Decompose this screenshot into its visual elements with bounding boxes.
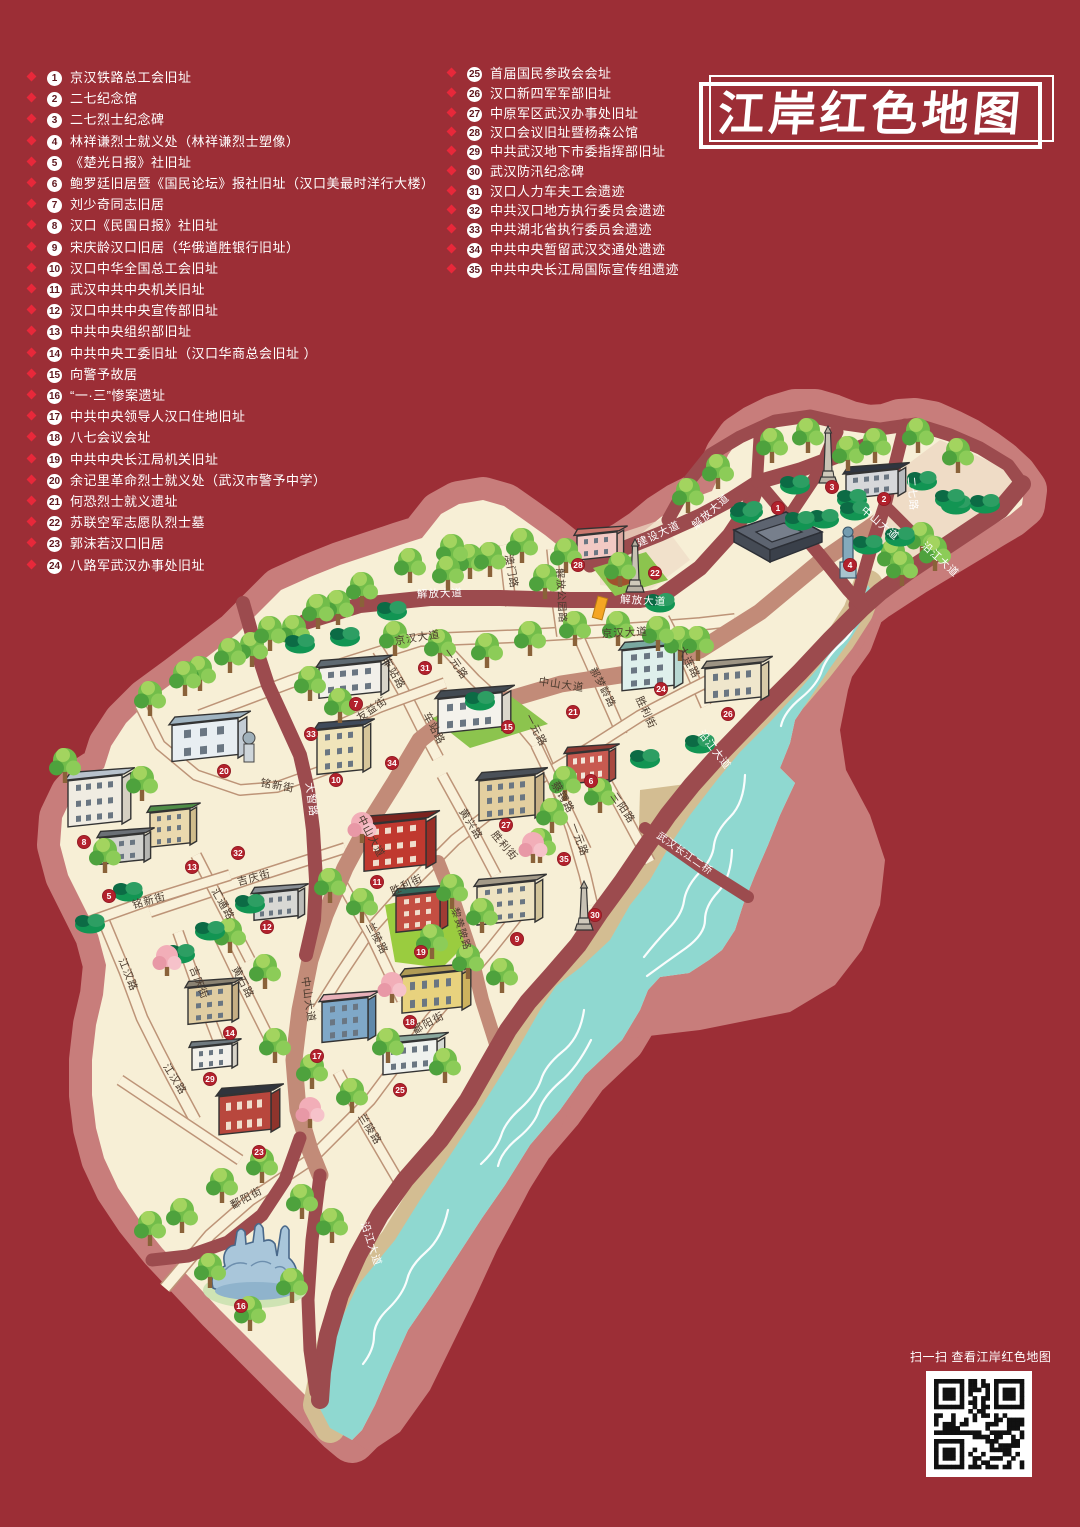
svg-text:30: 30 (590, 910, 600, 920)
svg-text:24: 24 (656, 684, 666, 694)
svg-text:21: 21 (568, 707, 578, 717)
svg-text:17: 17 (312, 1051, 322, 1061)
svg-text:4: 4 (848, 560, 853, 570)
svg-text:27: 27 (501, 820, 511, 830)
svg-text:2: 2 (882, 494, 887, 504)
svg-text:1: 1 (776, 503, 781, 513)
svg-text:22: 22 (650, 568, 660, 578)
svg-text:12: 12 (262, 922, 272, 932)
svg-text:8: 8 (82, 837, 87, 847)
svg-text:29: 29 (205, 1074, 215, 1084)
svg-text:26: 26 (723, 709, 733, 719)
svg-text:14: 14 (225, 1028, 235, 1038)
svg-text:9: 9 (515, 934, 520, 944)
svg-text:34: 34 (387, 758, 397, 768)
svg-text:3: 3 (830, 482, 835, 492)
svg-text:京汉大道: 京汉大道 (602, 625, 649, 640)
svg-text:6: 6 (589, 776, 594, 786)
svg-text:5: 5 (107, 891, 112, 901)
svg-text:11: 11 (373, 877, 382, 887)
svg-text:7: 7 (354, 699, 359, 709)
svg-text:16: 16 (236, 1301, 246, 1311)
svg-text:10: 10 (331, 775, 341, 785)
svg-text:25: 25 (395, 1085, 405, 1095)
svg-text:31: 31 (420, 663, 430, 673)
svg-text:解放大道: 解放大道 (620, 593, 667, 608)
svg-text:28: 28 (573, 560, 583, 570)
svg-text:32: 32 (233, 848, 243, 858)
svg-text:13: 13 (187, 862, 197, 872)
svg-text:解放大道: 解放大道 (417, 586, 463, 601)
svg-text:15: 15 (503, 722, 513, 732)
svg-text:19: 19 (416, 947, 426, 957)
svg-text:33: 33 (306, 729, 316, 739)
svg-text:18: 18 (405, 1017, 415, 1027)
svg-text:20: 20 (219, 766, 229, 776)
svg-text:35: 35 (559, 854, 569, 864)
svg-text:23: 23 (254, 1147, 264, 1157)
